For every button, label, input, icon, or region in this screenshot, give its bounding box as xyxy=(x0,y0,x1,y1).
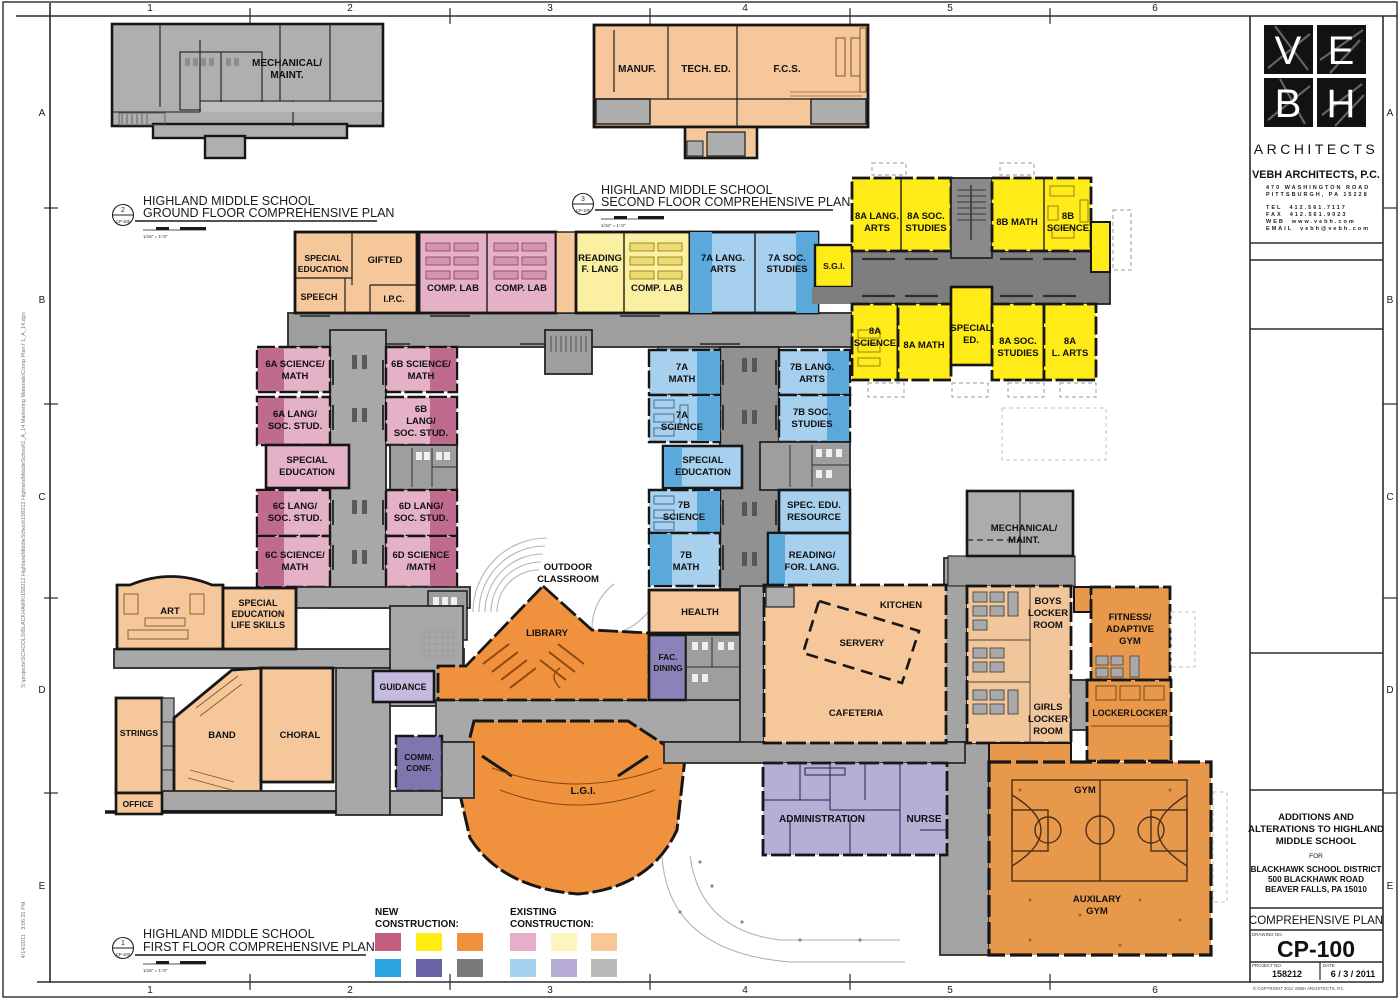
svg-text:GUIDANCE: GUIDANCE xyxy=(380,682,427,692)
svg-text:6A LANG/: 6A LANG/ xyxy=(273,409,317,420)
svg-text:5: 5 xyxy=(947,3,953,14)
svg-text:READING: READING xyxy=(578,253,622,264)
svg-text:GROUND FLOOR COMPREHENSIVE PLA: GROUND FLOOR COMPREHENSIVE PLAN xyxy=(143,206,394,220)
svg-text:MECHANICAL/: MECHANICAL/ xyxy=(991,523,1058,534)
svg-text:READING/: READING/ xyxy=(789,550,836,561)
svg-text:8B: 8B xyxy=(1062,211,1074,222)
svg-text:ARTS: ARTS xyxy=(710,264,736,275)
svg-text:MIDDLE SCHOOL: MIDDLE SCHOOL xyxy=(1276,836,1357,847)
svg-text:S:\projects\SCHOOLS\BLACKHAWK\: S:\projects\SCHOOLS\BLACKHAWK\158212 Hig… xyxy=(21,312,27,688)
svg-text:ARTS: ARTS xyxy=(864,223,890,234)
svg-text:8A: 8A xyxy=(1064,336,1076,347)
svg-text:HIGHLAND MIDDLE SCHOOL: HIGHLAND MIDDLE SCHOOL xyxy=(143,927,315,941)
svg-text:SCIENCE: SCIENCE xyxy=(663,512,705,523)
svg-text:STUDIES: STUDIES xyxy=(766,264,807,275)
svg-text:B: B xyxy=(1387,295,1394,306)
svg-text:BLACKHAWK SCHOOL DISTRICT: BLACKHAWK SCHOOL DISTRICT xyxy=(1251,865,1382,874)
svg-text:CONSTRUCTION:: CONSTRUCTION: xyxy=(375,919,459,930)
svg-text:ARTS: ARTS xyxy=(799,374,825,385)
svg-text:LIFE SKILLS: LIFE SKILLS xyxy=(231,620,285,630)
svg-text:6 / 3 / 2011: 6 / 3 / 2011 xyxy=(1331,969,1376,979)
svg-text:SOC. STUD.: SOC. STUD. xyxy=(268,513,322,524)
svg-text:DINING: DINING xyxy=(653,663,682,673)
svg-text:KITCHEN: KITCHEN xyxy=(880,600,922,611)
svg-text:MAINT.: MAINT. xyxy=(270,70,304,81)
svg-text:FAC.: FAC. xyxy=(658,652,677,662)
svg-text:WEB www.vebh.com: WEB www.vebh.com xyxy=(1266,219,1356,225)
svg-text:3: 3 xyxy=(581,196,585,203)
svg-text:1/16" = 1'-0": 1/16" = 1'-0" xyxy=(143,968,168,973)
svg-text:7A: 7A xyxy=(676,410,688,421)
svg-text:8A LANG.: 8A LANG. xyxy=(855,211,899,222)
svg-text:L. ARTS: L. ARTS xyxy=(1052,348,1089,359)
svg-text:LOCKER: LOCKER xyxy=(1092,708,1130,718)
svg-text:GIFTED: GIFTED xyxy=(368,255,403,266)
svg-text:DATE: DATE xyxy=(1323,963,1335,968)
svg-text:MATH: MATH xyxy=(669,374,696,385)
svg-text:STRINGS: STRINGS xyxy=(120,728,158,738)
svg-text:ADMINISTRATION: ADMINISTRATION xyxy=(779,814,865,825)
svg-text:7A LANG.: 7A LANG. xyxy=(701,253,745,264)
svg-text:E: E xyxy=(1387,881,1394,892)
svg-text:SOC. STUD.: SOC. STUD. xyxy=(268,421,322,432)
svg-text:LOCKER: LOCKER xyxy=(1028,714,1068,725)
svg-text:EDUCATION: EDUCATION xyxy=(232,609,285,619)
svg-text:VEBH ARCHITECTS, P.C.: VEBH ARCHITECTS, P.C. xyxy=(1252,169,1380,181)
svg-text:GIRLS: GIRLS xyxy=(1033,702,1062,713)
svg-text:B: B xyxy=(39,295,46,306)
svg-text:2: 2 xyxy=(347,985,353,996)
svg-text:RESOURCE: RESOURCE xyxy=(787,512,841,523)
svg-text:C: C xyxy=(38,492,45,503)
svg-text:SOC. STUD.: SOC. STUD. xyxy=(394,428,448,439)
svg-text:6: 6 xyxy=(1152,3,1158,14)
svg-text:ED.: ED. xyxy=(963,335,979,346)
svg-text:GYM: GYM xyxy=(1086,906,1108,917)
svg-text:7B: 7B xyxy=(680,550,692,561)
svg-text:SCIENCE: SCIENCE xyxy=(854,338,896,349)
svg-text:CAFETERIA: CAFETERIA xyxy=(829,708,884,719)
svg-text:MECHANICAL/: MECHANICAL/ xyxy=(252,58,322,69)
svg-text:CHORAL: CHORAL xyxy=(280,730,321,741)
svg-text:H: H xyxy=(1327,82,1356,126)
svg-text:2: 2 xyxy=(347,3,353,14)
svg-text:LANG/: LANG/ xyxy=(406,416,436,427)
svg-text:7A SOC.: 7A SOC. xyxy=(768,253,806,264)
svg-text:C: C xyxy=(1386,492,1393,503)
svg-text:COMPREHENSIVE PLAN: COMPREHENSIVE PLAN xyxy=(1249,915,1383,927)
svg-text:6: 6 xyxy=(1152,985,1158,996)
svg-text:L.G.I.: L.G.I. xyxy=(571,786,596,797)
svg-text:COMP. LAB: COMP. LAB xyxy=(427,283,479,294)
svg-text:SPEECH: SPEECH xyxy=(300,292,337,302)
svg-text:MATH: MATH xyxy=(282,562,309,573)
svg-text:PROJECT NO.: PROJECT NO. xyxy=(1252,963,1282,968)
svg-text:SERVERY: SERVERY xyxy=(840,638,886,649)
svg-text:8A: 8A xyxy=(869,326,881,337)
svg-text:CP-100: CP-100 xyxy=(116,952,131,957)
svg-text:HEALTH: HEALTH xyxy=(681,607,719,618)
svg-text:E: E xyxy=(39,881,46,892)
svg-text:FAX 412.561.9023: FAX 412.561.9023 xyxy=(1266,212,1347,218)
svg-text:EXISTING: EXISTING xyxy=(510,907,557,918)
svg-text:CP-100: CP-100 xyxy=(1277,936,1355,962)
svg-text:ROOM: ROOM xyxy=(1033,726,1063,737)
svg-text:COMP. LAB: COMP. LAB xyxy=(495,283,547,294)
svg-text:OFFICE: OFFICE xyxy=(123,799,154,809)
svg-text:6A SCIENCE/: 6A SCIENCE/ xyxy=(265,359,325,370)
svg-text:EDUCATION: EDUCATION xyxy=(675,467,731,478)
svg-text:/MATH: /MATH xyxy=(406,562,436,573)
svg-text:FITNESS/: FITNESS/ xyxy=(1109,612,1152,623)
svg-text:CP-100: CP-100 xyxy=(576,208,591,213)
svg-text:GYM: GYM xyxy=(1074,785,1096,796)
svg-text:1/16" = 1'-0": 1/16" = 1'-0" xyxy=(143,234,168,239)
svg-text:2: 2 xyxy=(121,207,125,214)
svg-text:SPECIAL: SPECIAL xyxy=(286,455,327,466)
svg-text:COMM.: COMM. xyxy=(404,752,434,762)
svg-text:V: V xyxy=(1275,29,1302,73)
svg-text:E: E xyxy=(1328,29,1355,73)
svg-text:7B: 7B xyxy=(678,500,690,511)
svg-text:EDUCATION: EDUCATION xyxy=(298,264,348,274)
svg-text:F. LANG: F. LANG xyxy=(582,264,619,275)
svg-text:8A SOC.: 8A SOC. xyxy=(999,336,1037,347)
svg-text:5: 5 xyxy=(947,985,953,996)
svg-text:6B: 6B xyxy=(415,404,427,415)
svg-text:7B LANG.: 7B LANG. xyxy=(790,362,834,373)
svg-text:A: A xyxy=(1387,108,1394,119)
svg-text:3: 3 xyxy=(547,3,553,14)
svg-text:TECH. ED.: TECH. ED. xyxy=(681,64,731,75)
svg-text:SOC. STUD.: SOC. STUD. xyxy=(394,513,448,524)
svg-text:SCIENCE: SCIENCE xyxy=(661,422,703,433)
svg-text:ARCHITECTS: ARCHITECTS xyxy=(1254,141,1378,157)
svg-text:STUDIES: STUDIES xyxy=(997,348,1038,359)
svg-text:LOCKER: LOCKER xyxy=(1130,708,1168,718)
svg-text:MATH: MATH xyxy=(282,371,309,382)
svg-text:8A SOC.: 8A SOC. xyxy=(907,211,945,222)
svg-text:1: 1 xyxy=(147,3,153,14)
svg-text:3: 3 xyxy=(547,985,553,996)
svg-text:MANUF.: MANUF. xyxy=(618,64,656,75)
svg-text:GYM: GYM xyxy=(1119,636,1141,647)
svg-text:PITTSBURGH, PA 15228: PITTSBURGH, PA 15228 xyxy=(1266,192,1369,198)
svg-text:MATH: MATH xyxy=(673,562,700,573)
svg-text:SPECIAL: SPECIAL xyxy=(304,253,341,263)
svg-text:CLASSROOM: CLASSROOM xyxy=(537,574,599,585)
svg-text:1/16" = 1'-0": 1/16" = 1'-0" xyxy=(601,223,626,228)
svg-text:LIBRARY: LIBRARY xyxy=(526,628,569,639)
svg-text:COMP. LAB: COMP. LAB xyxy=(631,283,683,294)
svg-text:SECOND FLOOR COMPREHENSIVE PLA: SECOND FLOOR COMPREHENSIVE PLAN xyxy=(601,195,850,209)
svg-text:SCIENCE: SCIENCE xyxy=(1047,223,1089,234)
svg-text:SPECIAL: SPECIAL xyxy=(950,323,991,334)
svg-text:MAINT.: MAINT. xyxy=(1008,535,1040,546)
svg-text:SPECIAL: SPECIAL xyxy=(238,598,278,608)
svg-text:D: D xyxy=(38,685,45,696)
svg-text:EDUCATION: EDUCATION xyxy=(279,467,335,478)
svg-text:1: 1 xyxy=(147,985,153,996)
svg-text:TEL 412.561.7117: TEL 412.561.7117 xyxy=(1266,205,1347,211)
svg-text:7A: 7A xyxy=(676,362,688,373)
svg-text:FIRST FLOOR COMPREHENSIVE PLAN: FIRST FLOOR COMPREHENSIVE PLAN xyxy=(143,940,375,954)
svg-text:ART: ART xyxy=(160,606,180,617)
svg-text:B: B xyxy=(1275,82,1302,126)
svg-text:4/14/2011 3:06:31 PM: 4/14/2011 3:06:31 PM xyxy=(21,901,27,958)
svg-text:SPEC. EDU.: SPEC. EDU. xyxy=(787,500,841,511)
svg-text:FOR: FOR xyxy=(1309,853,1323,860)
svg-text:6B SCIENCE/: 6B SCIENCE/ xyxy=(391,359,451,370)
svg-text:CP-100: CP-100 xyxy=(116,219,131,224)
svg-text:158212: 158212 xyxy=(1272,969,1302,979)
svg-text:470 WASHINGTON ROAD: 470 WASHINGTON ROAD xyxy=(1266,185,1370,191)
svg-text:SPECIAL: SPECIAL xyxy=(682,455,723,466)
svg-text:I.P.C.: I.P.C. xyxy=(383,294,404,304)
svg-text:500 BLACKHAWK ROAD: 500 BLACKHAWK ROAD xyxy=(1268,875,1364,884)
svg-text:STUDIES: STUDIES xyxy=(905,223,946,234)
svg-text:BOYS: BOYS xyxy=(1035,596,1062,607)
svg-text:8B MATH: 8B MATH xyxy=(996,217,1038,228)
svg-text:© COPYRIGHT 2011 VEBH ARCHITE: © COPYRIGHT 2011 VEBH ARCHITECTS, P.C. xyxy=(1253,986,1345,991)
svg-text:STUDIES: STUDIES xyxy=(791,419,832,430)
svg-text:S.G.I.: S.G.I. xyxy=(823,261,845,271)
svg-text:ROOM: ROOM xyxy=(1033,620,1063,631)
svg-text:CONF.: CONF. xyxy=(406,763,432,773)
svg-text:F.C.S.: F.C.S. xyxy=(773,64,800,75)
svg-text:D: D xyxy=(1386,685,1393,696)
svg-text:AUXILARY: AUXILARY xyxy=(1073,894,1122,905)
svg-text:ALTERATIONS TO HIGHLAND: ALTERATIONS TO HIGHLAND xyxy=(1248,824,1384,835)
svg-text:NURSE: NURSE xyxy=(906,814,941,825)
svg-text:4: 4 xyxy=(742,3,748,14)
svg-text:FOR. LANG.: FOR. LANG. xyxy=(785,562,840,573)
svg-text:6C SCIENCE/: 6C SCIENCE/ xyxy=(265,550,325,561)
svg-text:6D SCIENCE: 6D SCIENCE xyxy=(392,550,449,561)
svg-text:NEW: NEW xyxy=(375,907,399,918)
svg-text:8A MATH: 8A MATH xyxy=(903,340,944,351)
svg-text:7B SOC.: 7B SOC. xyxy=(793,407,831,418)
svg-text:CONSTRUCTION:: CONSTRUCTION: xyxy=(510,919,594,930)
svg-text:BEAVER FALLS, PA 15010: BEAVER FALLS, PA 15010 xyxy=(1265,885,1367,894)
svg-text:6C LANG/: 6C LANG/ xyxy=(273,501,318,512)
svg-text:ADAPTIVE: ADAPTIVE xyxy=(1106,624,1154,635)
svg-text:EMAIL vebh@vebh.com: EMAIL vebh@vebh.com xyxy=(1266,226,1370,232)
svg-text:1: 1 xyxy=(121,940,125,947)
svg-text:A: A xyxy=(39,108,46,119)
svg-text:ADDITIONS AND: ADDITIONS AND xyxy=(1278,812,1354,823)
svg-text:4: 4 xyxy=(742,985,748,996)
svg-text:BAND: BAND xyxy=(208,730,236,741)
svg-text:LOCKER: LOCKER xyxy=(1028,608,1068,619)
svg-text:6D LANG/: 6D LANG/ xyxy=(399,501,444,512)
svg-text:OUTDOOR: OUTDOOR xyxy=(544,562,593,573)
svg-text:MATH: MATH xyxy=(408,371,435,382)
